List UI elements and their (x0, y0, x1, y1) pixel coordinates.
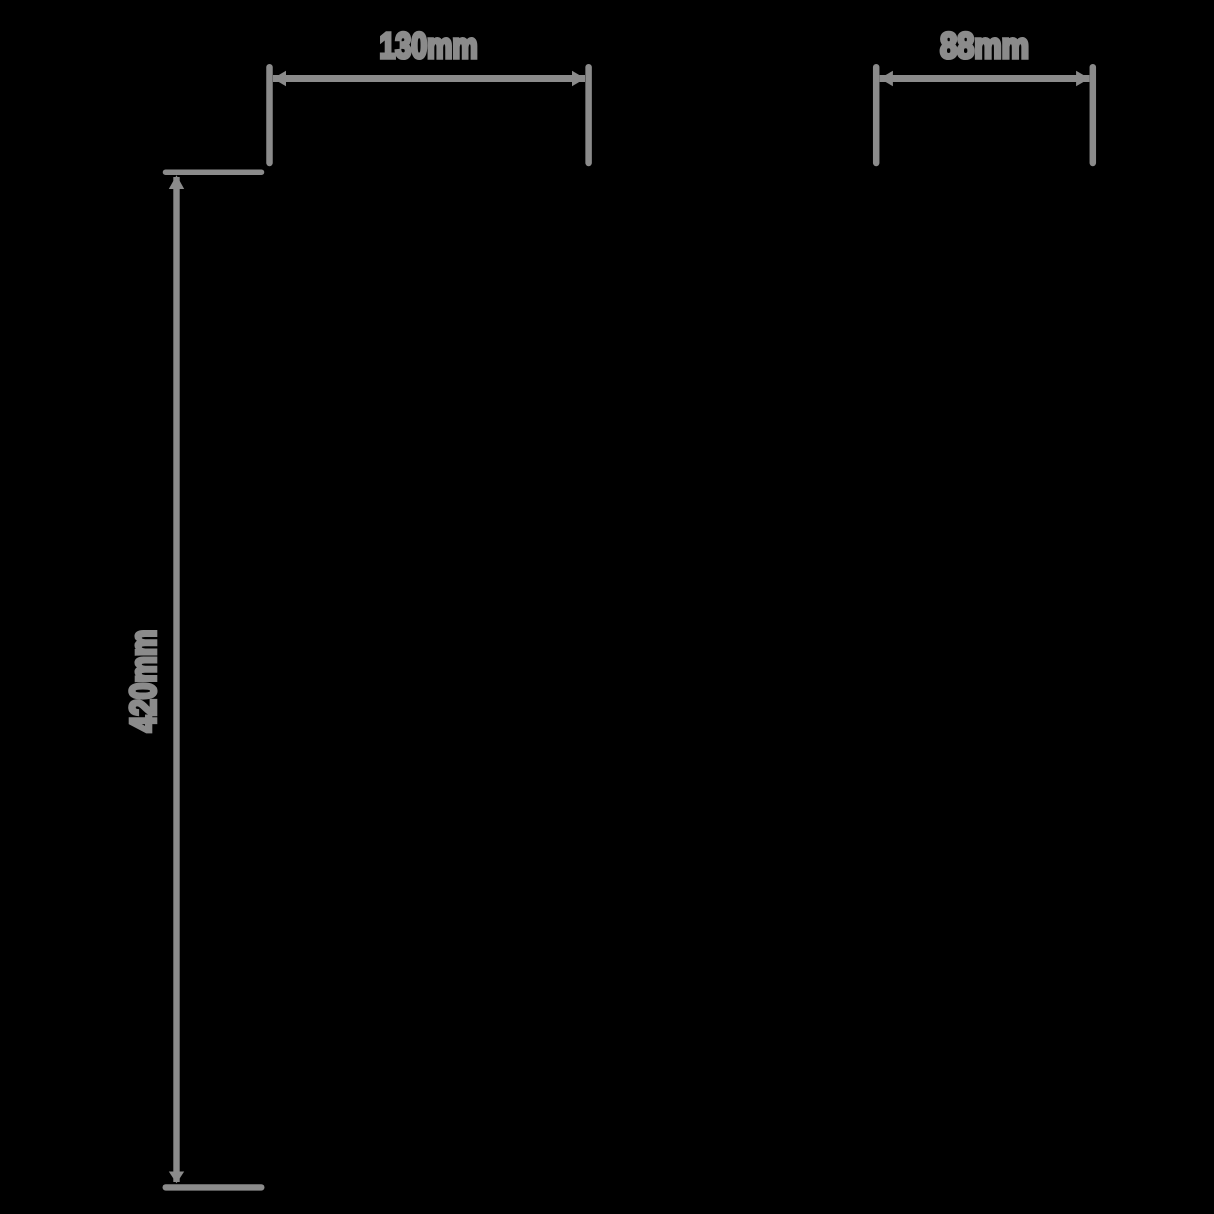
svg-text:130mm: 130mm (380, 26, 478, 66)
svg-text:420mm: 420mm (124, 630, 164, 733)
svg-text:88mm: 88mm (940, 27, 1029, 67)
